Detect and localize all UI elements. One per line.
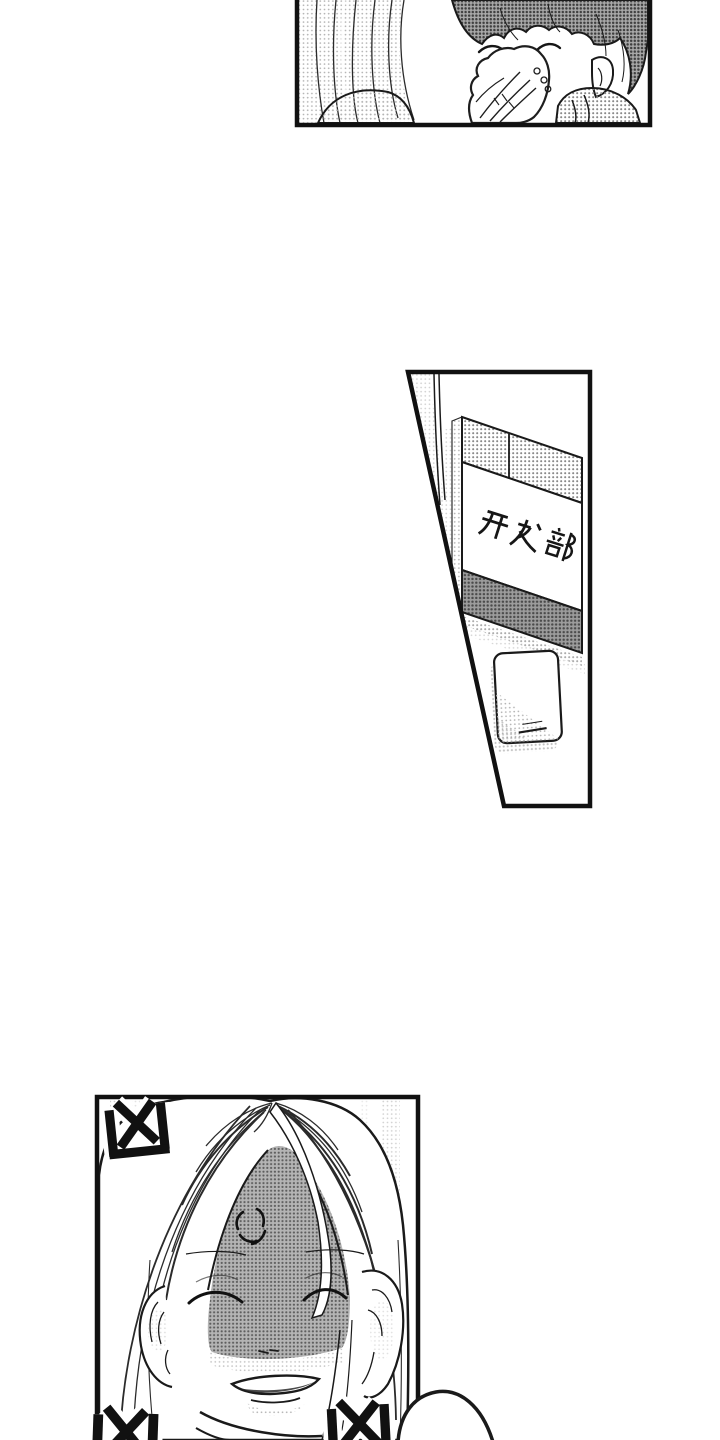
laughing-boy [452, 0, 648, 123]
panel-top [297, 0, 650, 125]
manga-artwork [0, 0, 720, 1440]
long-haired-character [299, 0, 414, 123]
boy-hand [469, 46, 549, 123]
head-silhouette [398, 1391, 493, 1440]
light-switch [490, 650, 563, 753]
panel-middle [408, 372, 590, 806]
manga-page: 开发部 凶 凶 凶 [0, 0, 720, 1440]
